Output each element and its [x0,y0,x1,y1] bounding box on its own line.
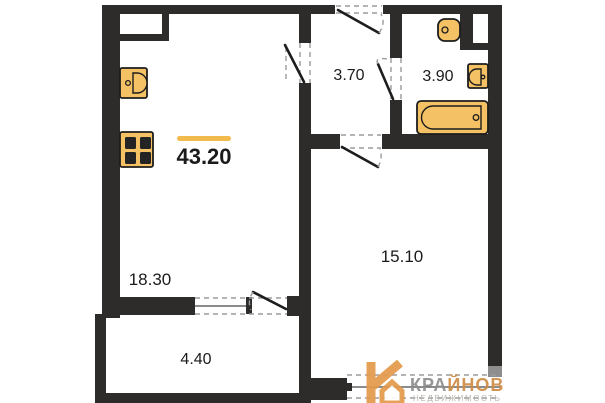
watermark-brand-text: КРАЙНОВ [410,374,504,395]
bathroom-sink-icon [468,64,488,88]
wall-bedroom-top-left [311,134,340,149]
wall-left [102,5,120,318]
wall-hallway-bathroom-upper [390,14,402,58]
toilet-body [438,19,460,41]
room-label-bathroom: 3.90 [422,68,453,85]
duct-niche-wall-horizontal [120,34,169,41]
wall-balcony-bottom [95,393,311,403]
brand-part-orange: ЙНОВ [447,374,504,395]
wall-top-right-segment [383,5,502,14]
wall-bedroom-top-right [382,134,488,149]
toilet-icon [438,19,460,41]
wall-living-bedroom [299,83,311,403]
stove-burner [140,137,151,149]
stove-icon [120,132,153,167]
wall-living-bottom [102,297,195,315]
wall-right [488,5,502,366]
floor-plan-drawing: 43.20 18.30 3.70 3.90 15.10 4.40 КРАЙНОВ… [0,0,605,403]
room-label-total-area: 43.20 [176,144,231,169]
stove-burner [125,137,136,149]
bathroom-niche-wall-horizontal [460,43,488,50]
room-label-bedroom: 15.10 [381,247,424,266]
balcony-unit-frame-tick [246,297,252,314]
bathtub-icon [417,101,488,134]
bedroom-window-frame-tick [347,383,352,391]
stove-burner [140,152,151,164]
bathroom-niche-wall-vertical [460,14,473,43]
brand-part-grey: КРА [410,375,447,395]
watermark-tagline-text: НЕДВИЖИМОСТЬ [413,394,502,403]
wall-pier-balcony-unit [287,296,311,316]
kitchen-sink-icon [120,68,147,98]
wall-bedroom-bottom-foot [311,378,347,400]
room-label-balcony: 4.40 [180,351,211,368]
wall-balcony-left [95,314,106,398]
floor-plan: 43.20 18.30 3.70 3.90 15.10 4.40 КРАЙНОВ… [0,0,605,403]
wall-top-left-segment [102,5,335,14]
total-area-accent-line [177,136,231,141]
kitchen-sink-basin [133,73,147,93]
room-label-living: 18.30 [129,270,172,289]
bathroom-sink-basin [469,69,481,85]
room-label-hallway: 3.70 [333,67,364,84]
wall-hallway-left-upper [299,14,311,43]
logo-house-icon [382,382,402,403]
stove-burner [125,152,136,164]
